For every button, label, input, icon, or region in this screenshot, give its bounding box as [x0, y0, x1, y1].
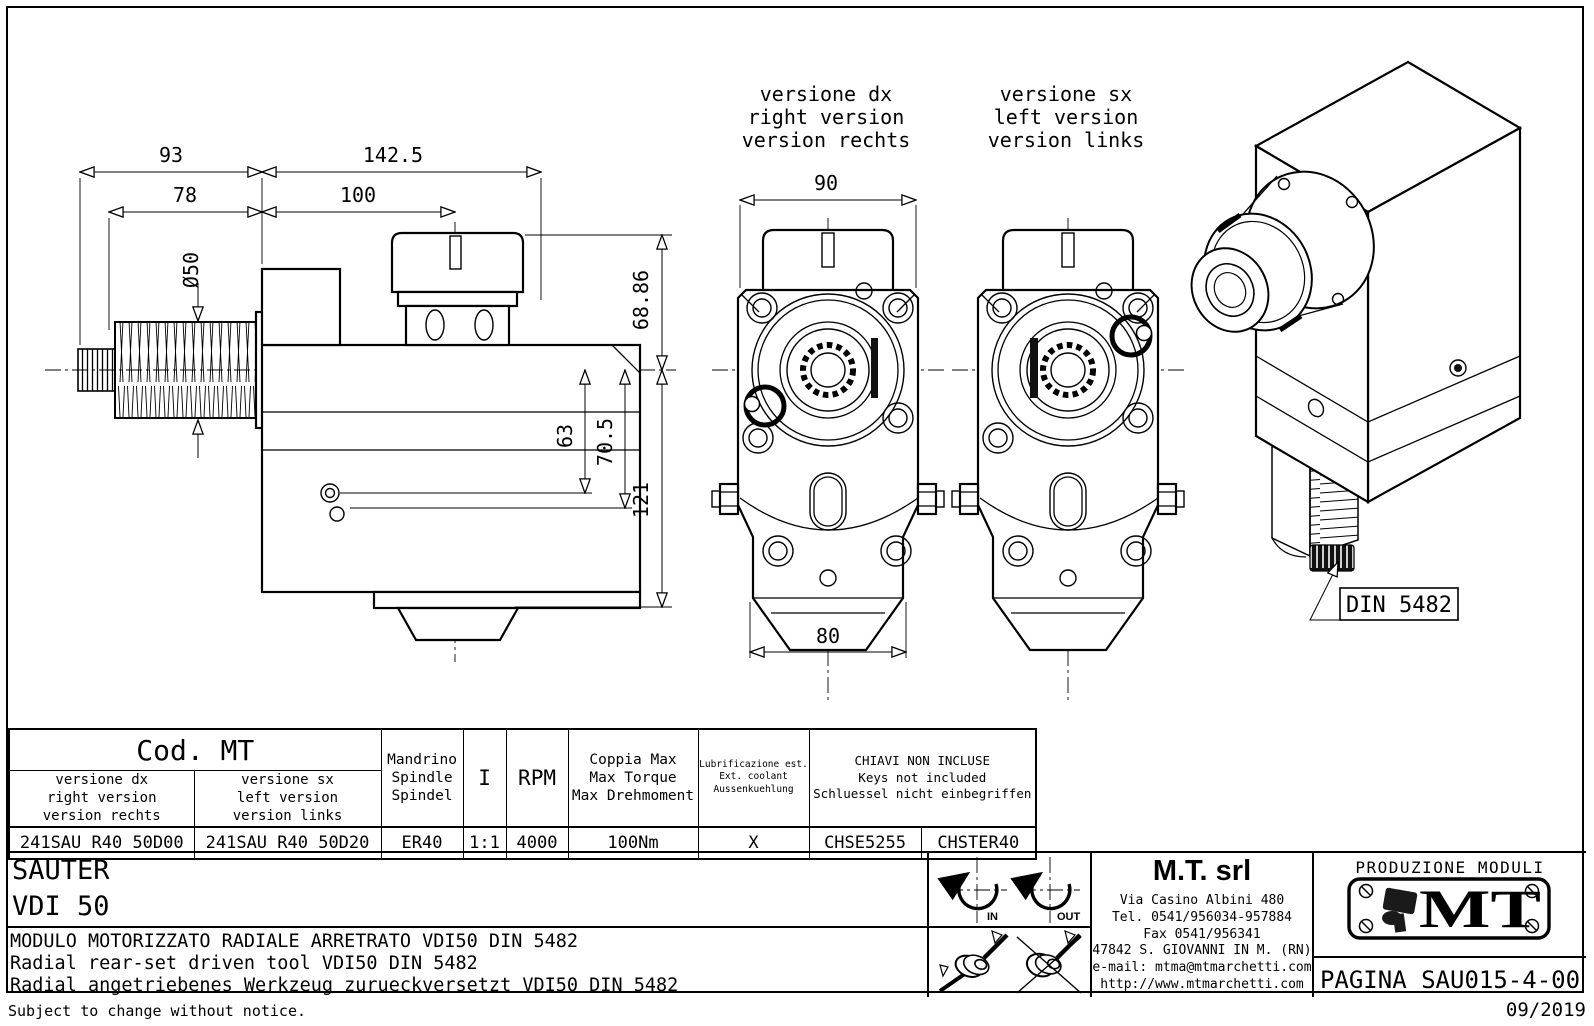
mt-logo: MT: [1346, 876, 1554, 942]
cell-code-dx: 241SAU_R40_50D00: [9, 827, 194, 859]
cell-coolant: X: [698, 827, 809, 859]
rotation-in-label: IN: [987, 911, 998, 923]
threaded-shank: [115, 322, 256, 418]
company-tel: Tel. 0541/956034-957884: [1092, 910, 1312, 927]
company-email: e-mail: mtma@mtmarchetti.com: [1092, 960, 1312, 977]
table-header-spindle: Mandrino Spindle Spindel: [381, 729, 463, 827]
cell-torque: 100Nm: [568, 827, 698, 859]
rotation-out-label: OUT: [1057, 911, 1081, 923]
wrench-correct-icon: [940, 931, 1007, 991]
subheader-dx-de: version rechts: [10, 807, 194, 825]
cell-spindle: ER40: [381, 827, 463, 859]
dim-68-86-text: 68.86: [629, 270, 653, 330]
subheader-sx-it: versione sx: [195, 771, 381, 789]
drawing-canvas: 93 142.5 78 100 Ø50: [0, 0, 1594, 728]
front-view-sx: [952, 218, 1184, 700]
side-clamp-right: [918, 484, 944, 514]
description-de: Radial angetriebenes Werkzeug zurueckver…: [10, 975, 678, 997]
header-torque-de: Max Drehmoment: [569, 787, 698, 805]
version-dx-line1: versione dx: [760, 82, 892, 106]
header-torque-en: Max Torque: [569, 769, 698, 787]
header-keys-de: Schluessel nicht einbegriffen: [810, 786, 1036, 802]
dim-100: 100: [262, 183, 455, 212]
dim-70-5-text: 70.5: [593, 418, 617, 466]
dim-93-text: 93: [159, 143, 183, 167]
dim-100-text: 100: [340, 183, 376, 207]
version-dx-line2: right version: [748, 105, 905, 129]
side-clamp-left: [712, 484, 738, 514]
company-fax: Fax 0541/956341: [1092, 927, 1312, 944]
pagina-divider: [1312, 956, 1586, 958]
cell-key1: CHSE5255: [809, 827, 921, 859]
header-coolant-it: Lubrificazione est.: [699, 759, 809, 772]
key-bar-sx: [1030, 338, 1038, 398]
side-view: 93 142.5 78 100 Ø50: [45, 143, 676, 662]
brand-title: SAUTER: [12, 855, 110, 886]
company-name: M.T. srl: [1092, 855, 1312, 888]
subheader-sx-en: left version: [195, 789, 381, 807]
page-code: PAGINA SAU015-4-00: [1314, 966, 1586, 994]
header-keys-it: CHIAVI NON INCLUSE: [810, 753, 1036, 769]
description-block: MODULO MOTORIZZATO RADIALE ARRETRATO VDI…: [10, 931, 678, 997]
rotation-direction-cell: IN OUT: [929, 853, 1090, 926]
footer-date: 09/2019: [1420, 999, 1586, 1021]
dim-80-text: 80: [816, 624, 840, 648]
table-data-row: 241SAU_R40_50D00 241SAU_R40_50D20 ER40 1…: [9, 827, 1036, 859]
footer-notice: Subject to change without notice.: [8, 1002, 306, 1020]
rotation-in-icon: IN: [947, 857, 1007, 923]
version-dx-line3: version rechts: [742, 128, 911, 152]
din-label-text: DIN 5482: [1346, 593, 1452, 618]
gearbox-body: [262, 345, 640, 592]
subheader-sx-de: version links: [195, 807, 381, 825]
bottom-nut: [398, 608, 518, 640]
dim-142-5-text: 142.5: [363, 143, 423, 167]
iso-splined-end: [1310, 545, 1354, 571]
table-header-torque: Coppia Max Max Torque Max Drehmoment: [568, 729, 698, 827]
table-subheader-sx: versione sx left version version links: [194, 771, 381, 827]
subheader-dx-en: right version: [10, 789, 194, 807]
cell-rpm: 4000: [506, 827, 568, 859]
version-sx-line1: versione sx: [1000, 82, 1132, 106]
cell-ratio: 1:1: [463, 827, 506, 859]
company-street: Via Casino Albini 480: [1092, 893, 1312, 910]
description-en: Radial rear-set driven tool VDI50 DIN 54…: [10, 953, 678, 975]
header-spindle-en: Spindle: [382, 769, 463, 787]
dim-93: 93: [80, 143, 262, 345]
version-sx-line3: version links: [988, 128, 1145, 152]
table-header-coolant: Lubrificazione est. Ext. coolant Aussenk…: [698, 729, 809, 827]
description-it: MODULO MOTORIZZATO RADIALE ARRETRATO VDI…: [10, 931, 678, 953]
wrench-wrong-icon: [1017, 931, 1081, 993]
body-bottom-step: [374, 592, 640, 608]
version-dx-label: versione dx right version version rechts: [742, 82, 911, 152]
front-top-cap: [763, 230, 893, 292]
model-title: VDI 50: [12, 891, 110, 922]
header-coolant-de: Aussenkuehlung: [699, 784, 809, 797]
table-header-ratio: I: [463, 729, 506, 827]
inout-divider: [927, 926, 1090, 928]
table-subheader-dx: versione dx right version version rechts: [9, 771, 194, 827]
er-collet-nut: [392, 233, 523, 292]
header-spindle-de: Spindel: [382, 787, 463, 805]
titleblock-top-line: [6, 851, 1586, 853]
table-header-rpm: RPM: [506, 729, 568, 827]
rotation-out-icon: OUT: [1020, 857, 1081, 923]
isometric-view: DIN 5482: [1177, 62, 1520, 620]
header-coolant-en: Ext. coolant: [699, 771, 809, 784]
dim-121-text: 121: [629, 482, 653, 518]
dim-63-text: 63: [553, 424, 577, 448]
dim-dia50-text: Ø50: [179, 252, 203, 288]
version-sx-label: versione sx left version version links: [988, 82, 1145, 152]
header-spindle-it: Mandrino: [382, 751, 463, 769]
company-web: http://www.mtmarchetti.com: [1092, 977, 1312, 994]
cell-code-sx: 241SAU_R40_50D20: [194, 827, 381, 859]
body-upper-block: [262, 269, 340, 345]
header-torque-it: Coppia Max: [569, 751, 698, 769]
subheader-dx-it: versione dx: [10, 771, 194, 789]
version-sx-line2: left version: [994, 105, 1139, 129]
titleblock-desc-line: [6, 926, 927, 928]
spec-table: Cod. MT Mandrino Spindle Spindel I RPM C…: [8, 728, 1037, 860]
company-address: Via Casino Albini 480 Tel. 0541/956034-9…: [1092, 893, 1312, 994]
wrench-usage-cell: [929, 929, 1090, 995]
splined-shaft-end: [78, 349, 115, 391]
drawing-sheet: 93 142.5 78 100 Ø50: [0, 0, 1594, 1026]
dim-78-text: 78: [173, 183, 197, 207]
table-header-cod-mt: Cod. MT: [9, 729, 381, 771]
company-city: 47842 S. GIOVANNI IN M. (RN): [1092, 943, 1312, 960]
header-keys-en: Keys not included: [810, 770, 1036, 786]
logo-mt-text: MT: [1419, 879, 1541, 939]
key-bar-dx: [871, 338, 878, 398]
dim-90-text: 90: [814, 171, 838, 195]
table-header-keys: CHIAVI NON INCLUSE Keys not included Sch…: [809, 729, 1036, 827]
